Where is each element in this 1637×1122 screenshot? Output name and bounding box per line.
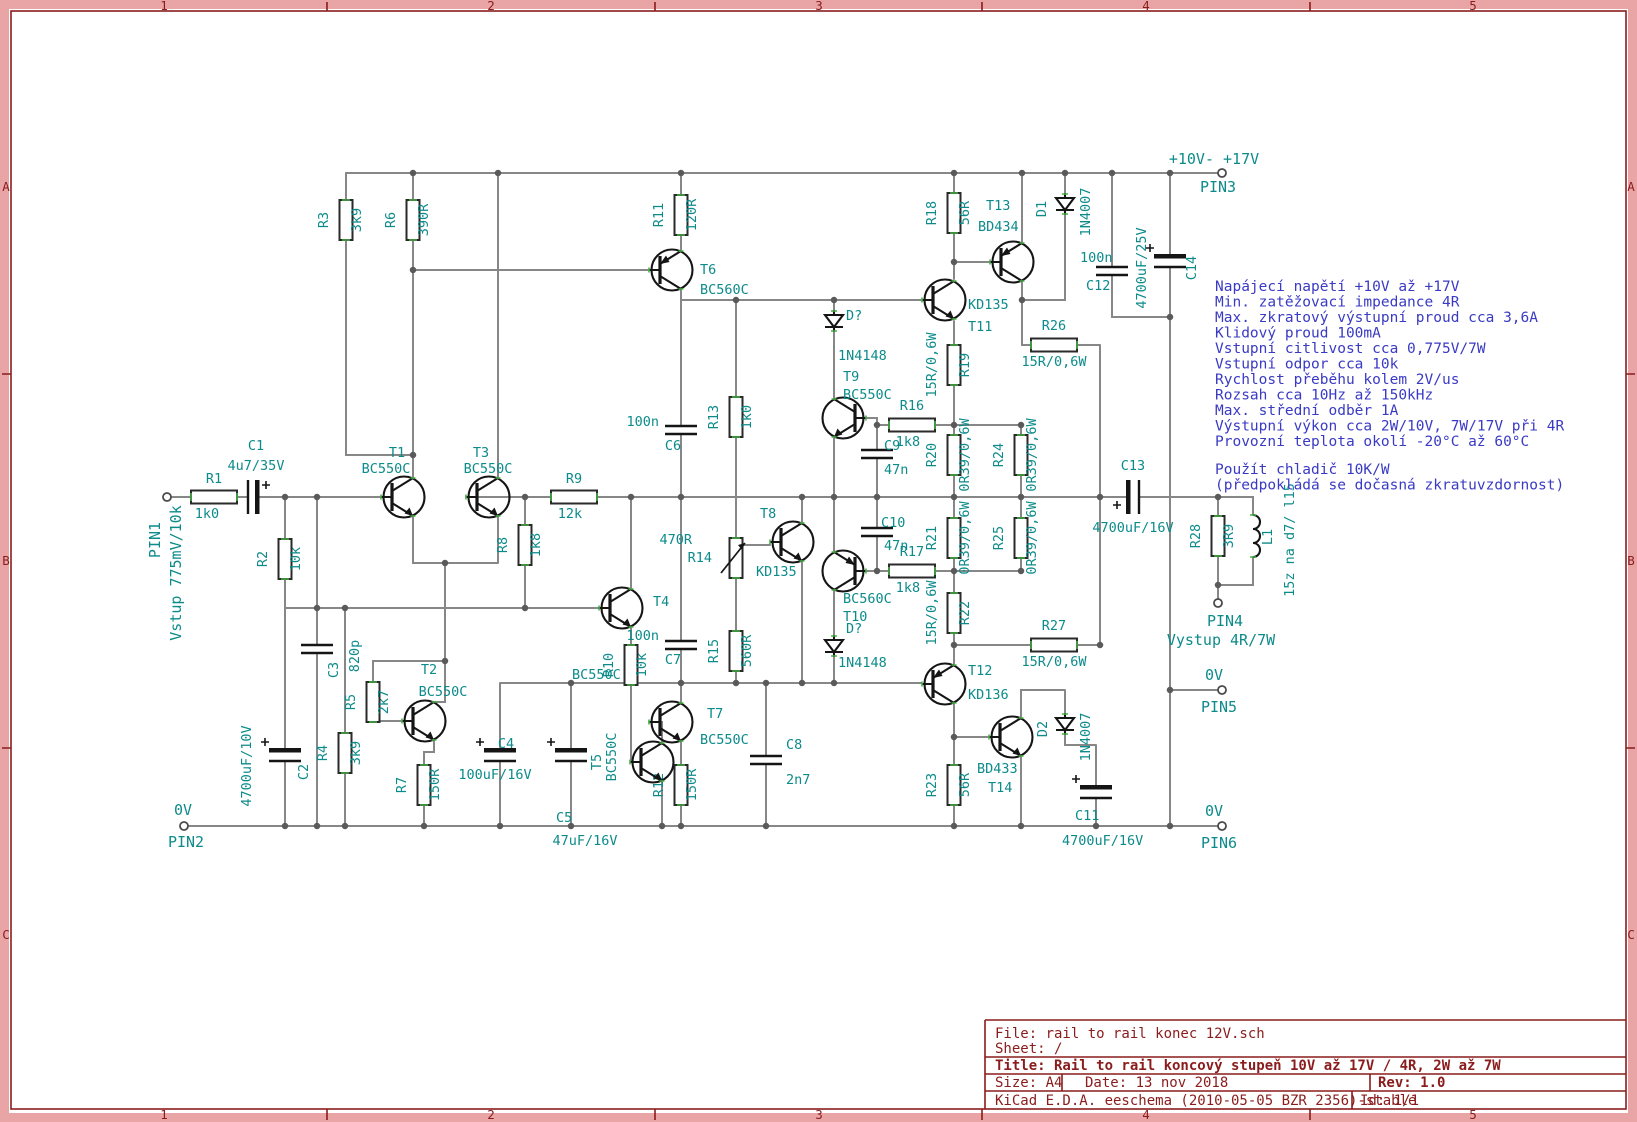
ref: R4 <box>315 745 331 761</box>
ref: R18 <box>924 201 940 225</box>
component-R24[interactable]: R24 0R39/0,6W <box>991 418 1040 492</box>
ref: R22 <box>957 601 973 625</box>
value: 4u7/35V <box>228 458 285 474</box>
net-label: 0V <box>1205 666 1223 684</box>
value: 120R <box>684 198 700 231</box>
component-C10[interactable]: C10 47n <box>861 515 908 554</box>
note-line: (předpokládá se dočasná zkratuvzdornost) <box>1215 478 1564 494</box>
value: 15R/0,6W <box>1021 354 1087 370</box>
components-layer: R3 3k9 R6 390R R11 120R R18 56R R2 10k R… <box>191 188 1298 849</box>
component-C14[interactable]: 4700uF/25V C14 <box>1134 227 1200 308</box>
row-label-b2: B <box>1627 553 1635 568</box>
ref: C5 <box>556 810 572 826</box>
value: 2n7 <box>786 772 810 788</box>
note-line: Rychlost přeběhu kolem 2V/us <box>1215 372 1459 388</box>
ref: T13 <box>986 198 1010 214</box>
ref: C4 <box>498 736 514 752</box>
value: 56R <box>957 772 973 797</box>
component-R28[interactable]: R28 3R9 <box>1188 516 1237 556</box>
col-label-4: 4 <box>1142 0 1150 13</box>
ref: C11 <box>1075 808 1099 824</box>
component-R18[interactable]: R18 56R <box>924 193 973 233</box>
note-line: Max. zkratový výstupní proud cca 3,6A <box>1215 310 1538 326</box>
col-label-3: 3 <box>815 0 823 13</box>
value: BC550C <box>572 667 621 683</box>
ref: T3 <box>473 445 489 461</box>
value: 1k8 <box>528 533 544 557</box>
component-R21[interactable]: R21 0R39/0,6W <box>924 501 973 575</box>
ref: T6 <box>700 262 716 278</box>
row-label-b: B <box>2 553 10 568</box>
component-T7[interactable]: T7 BC550C <box>649 702 749 749</box>
value: 1N4007 <box>1078 713 1094 762</box>
pin-name: PIN4 <box>1207 612 1243 630</box>
component-R2[interactable]: R2 10k <box>255 539 304 579</box>
ref: R11 <box>651 203 667 227</box>
ref: C2 <box>296 764 312 780</box>
value: 0R39/0,6W <box>957 501 973 575</box>
component-R6[interactable]: R6 390R <box>383 200 432 240</box>
component-T8[interactable]: T8 KD135 <box>756 506 814 580</box>
value: 47n <box>884 538 908 554</box>
ref: R13 <box>706 405 722 429</box>
ref: T2 <box>421 662 437 678</box>
net-label: 0V <box>174 801 192 819</box>
component-T3[interactable]: T3 BC550C <box>464 445 513 518</box>
component-R22[interactable]: 15R/0,6W R22 <box>924 580 973 646</box>
titleblock-rev: Rev: 1.0 <box>1378 1075 1445 1091</box>
ref: D1 <box>1034 201 1050 217</box>
note-line: Min. zatěžovací impedance 4R <box>1215 295 1460 311</box>
note-line: Vstupní odpor cca 10k <box>1215 357 1399 373</box>
ref: R5 <box>343 694 359 710</box>
note-line: Vstupní citlivost cca 0,775V/7W <box>1215 341 1486 357</box>
value: 0R39/0,6W <box>1024 418 1040 492</box>
value: 820p <box>347 640 363 673</box>
value: BC550C <box>604 733 620 782</box>
pin-name: PIN3 <box>1200 178 1236 196</box>
component-R1[interactable]: R1 1k0 <box>191 471 237 522</box>
component-R27[interactable]: R27 15R/0,6W <box>1021 618 1087 670</box>
value: 56R <box>957 200 973 225</box>
value: 15R/0,6W <box>924 332 940 398</box>
ref: C7 <box>665 652 681 668</box>
notes-block[interactable]: Napájecí napětí +10V až +17V Min. zatěžo… <box>1215 279 1564 494</box>
value: 470R <box>659 532 692 548</box>
value: 10k <box>288 547 304 571</box>
schematic-sheet: 1 2 3 4 5 1 2 3 4 5 A B C A B C R3 3k9 R… <box>0 0 1637 1122</box>
component-C4[interactable]: C4 100uF/16V <box>458 736 531 783</box>
value: 4700uF/16V <box>1092 520 1173 536</box>
col-label-1b: 1 <box>160 1107 168 1122</box>
component-C3[interactable]: C3 820p <box>301 640 363 678</box>
component-T9[interactable]: T9 BC550C <box>823 369 892 439</box>
ref: R26 <box>1042 318 1066 334</box>
value: 47n <box>884 462 908 478</box>
ref: T11 <box>968 319 992 335</box>
ref: T5 <box>589 754 605 770</box>
ref: C3 <box>326 662 342 678</box>
row-label-a2: A <box>1627 179 1635 194</box>
value: 100n <box>626 628 659 644</box>
value: 1k0 <box>195 506 219 522</box>
ref: C8 <box>786 737 802 753</box>
value: BD434 <box>978 219 1019 235</box>
net-label: 0V <box>1205 802 1223 820</box>
value: BC550C <box>843 387 892 403</box>
ref: R16 <box>900 398 924 414</box>
component-R5[interactable]: R5 2k7 <box>343 682 392 722</box>
component-R12[interactable]: R12 150R <box>651 765 700 805</box>
ref: T7 <box>707 706 723 722</box>
col-label-2: 2 <box>487 0 495 13</box>
row-label-c: C <box>2 927 10 942</box>
titleblock-date: Date: 13 nov 2018 <box>1085 1075 1228 1091</box>
component-T2[interactable]: T2 BC550C <box>402 662 467 742</box>
ref: C1 <box>248 438 264 454</box>
component-T13[interactable]: T13 BD434 <box>978 198 1034 283</box>
ref: R1 <box>206 471 222 487</box>
col-label-2b: 2 <box>487 1107 495 1122</box>
col-label-1: 1 <box>160 0 168 13</box>
value: 4700uF/25V <box>1134 227 1150 308</box>
value: BC550C <box>362 461 411 477</box>
col-label-3b: 3 <box>815 1107 823 1122</box>
titleblock-title: Title: Rail to rail koncový stupeň 10V a… <box>995 1058 1501 1074</box>
value: BD433 <box>977 761 1018 777</box>
ref: R23 <box>924 773 940 797</box>
ref: R8 <box>495 537 511 553</box>
titleblock-size: Size: A4 <box>995 1075 1062 1091</box>
value: 100n <box>626 414 659 430</box>
titleblock-id: Id: 1/1 <box>1360 1093 1419 1109</box>
value: 15R/0,6W <box>924 580 940 646</box>
value: KD135 <box>968 297 1009 313</box>
ref: D2 <box>1035 721 1051 737</box>
component-R23[interactable]: R23 56R <box>924 765 973 805</box>
note-line: Max. střední odběr 1A <box>1215 403 1399 419</box>
value: BC560C <box>700 282 749 298</box>
net-label: Vstup 775mV/10k <box>167 505 185 640</box>
value: 1N4148 <box>838 655 887 671</box>
ref: C12 <box>1086 278 1110 294</box>
note-line: Klidový proud 100mA <box>1215 326 1381 342</box>
pin-name: PIN1 <box>146 522 164 558</box>
component-T10[interactable]: BC560C T10 <box>823 551 892 626</box>
component-R25[interactable]: R25 0R39/0,6W <box>991 501 1040 575</box>
component-R9[interactable]: R9 12k <box>551 471 597 522</box>
component-R15[interactable]: R15 560R <box>706 631 755 671</box>
component-R8[interactable]: R8 1k8 <box>495 525 544 565</box>
pin-name: PIN6 <box>1201 834 1237 852</box>
ref: T9 <box>843 369 859 385</box>
ref: C13 <box>1121 458 1145 474</box>
ref: R27 <box>1042 618 1066 634</box>
ref: R25 <box>991 526 1007 550</box>
value: 1k0 <box>739 405 755 429</box>
row-label-a: A <box>2 179 10 194</box>
ref: R3 <box>316 212 332 228</box>
ref: R20 <box>924 443 940 467</box>
value: KD135 <box>756 564 797 580</box>
value: BC550C <box>419 684 468 700</box>
pin-name: PIN5 <box>1201 698 1237 716</box>
component-R13[interactable]: R13 1k0 <box>706 397 755 437</box>
ref: R19 <box>957 353 973 377</box>
component-T12[interactable]: T12 KD136 <box>922 663 1009 705</box>
value: 560R <box>739 634 755 667</box>
component-C2[interactable]: 4700uF/10V C2 <box>239 725 312 806</box>
value: 3k9 <box>348 741 364 765</box>
ref: D? <box>846 621 862 637</box>
col-label-5: 5 <box>1469 0 1477 13</box>
ref: T1 <box>389 445 405 461</box>
ref: C14 <box>1184 256 1200 280</box>
title-block: File: rail to rail konec 12V.sch Sheet: … <box>985 1020 1626 1109</box>
value: 100uF/16V <box>458 767 531 783</box>
col-label-4b: 4 <box>1142 1107 1150 1122</box>
component-R4[interactable]: R4 3k9 <box>315 733 364 773</box>
component-T6[interactable]: T6 BC560C <box>649 250 749 299</box>
ref: R9 <box>566 471 582 487</box>
value: 4700uF/16V <box>1062 833 1143 849</box>
value: KD136 <box>968 687 1009 703</box>
pin-PIN4[interactable]: PIN4 Vystup 4R/7W <box>1167 599 1276 649</box>
ref: L1 <box>1260 529 1276 545</box>
pin-PIN1[interactable]: PIN1 Vstup 775mV/10k <box>146 493 185 641</box>
ref: T14 <box>988 780 1012 796</box>
ref: D? <box>846 308 862 324</box>
value: 390R <box>416 203 432 236</box>
note-line: Použít chladič 10K/W <box>1215 462 1390 478</box>
component-C8[interactable]: C8 2n7 <box>750 737 810 788</box>
value: 3k9 <box>349 208 365 232</box>
component-C11[interactable]: C11 4700uF/16V <box>1062 775 1143 849</box>
note-line: Provozní teplota okolí -20°C až 60°C <box>1215 434 1529 450</box>
ref: R6 <box>383 212 399 228</box>
value: 0R39/0,6W <box>1024 501 1040 575</box>
ref: T4 <box>653 594 669 610</box>
component-T14[interactable]: BD433 T14 <box>977 717 1033 797</box>
component-R26[interactable]: R26 15R/0,6W <box>1021 318 1087 370</box>
value: BC550C <box>700 732 749 748</box>
ref: R28 <box>1188 524 1204 548</box>
net-label: Vystup 4R/7W <box>1167 631 1276 649</box>
ref: R21 <box>924 526 940 550</box>
ref: R24 <box>991 443 1007 467</box>
component-R14[interactable]: 470R R14 <box>659 532 745 578</box>
value: 10k <box>634 653 650 677</box>
component-R11[interactable]: R11 120R <box>651 195 700 235</box>
value: 12k <box>558 506 582 522</box>
ref: R14 <box>688 550 712 566</box>
component-C6[interactable]: 100n C6 <box>626 414 697 454</box>
value: BC560C <box>843 591 892 607</box>
titleblock-file: File: rail to rail konec 12V.sch <box>995 1026 1265 1042</box>
ref: C6 <box>665 438 681 454</box>
component-R3[interactable]: R3 3k9 <box>316 200 365 240</box>
value: 15z na d7/ l15 <box>1282 483 1298 597</box>
value: 1k8 <box>896 580 920 596</box>
row-label-c2: C <box>1627 927 1635 942</box>
component-T11[interactable]: KD135 T11 <box>922 280 1009 336</box>
value: 4700uF/10V <box>239 725 255 806</box>
value: 1N4148 <box>838 348 887 364</box>
col-label-5b: 5 <box>1469 1107 1477 1122</box>
component-R7[interactable]: R7 150R <box>394 765 443 805</box>
titleblock-tool: KiCad E.D.A. eeschema (2010-05-05 BZR 23… <box>995 1093 1416 1109</box>
value: 0R39/0,6W <box>957 418 973 492</box>
pin-name: PIN2 <box>168 833 204 851</box>
ref: R7 <box>394 777 410 793</box>
ref: C10 <box>881 515 905 531</box>
note-line: Výstupní výkon cca 2W/10V, 7W/17V při 4R <box>1215 419 1564 435</box>
value: 3R9 <box>1221 524 1237 548</box>
ref: R2 <box>255 551 271 567</box>
value: 100n <box>1080 250 1113 266</box>
note-line: Rozsah cca 10Hz až 150kHz <box>1215 388 1433 404</box>
ref: R15 <box>706 639 722 663</box>
value: 150R <box>427 768 443 801</box>
value: 15R/0,6W <box>1021 654 1087 670</box>
ref: T12 <box>968 663 992 679</box>
value: BC550C <box>464 461 513 477</box>
value: 2k7 <box>376 690 392 714</box>
value: 1N4007 <box>1078 188 1094 237</box>
sheet-border: 1 2 3 4 5 1 2 3 4 5 A B C A B C <box>2 0 1635 1122</box>
component-C12[interactable]: 100n C12 <box>1080 250 1128 294</box>
note-line: Napájecí napětí +10V až +17V <box>1215 279 1460 295</box>
component-R19[interactable]: 15R/0,6W R19 <box>924 332 973 398</box>
value: 47uF/16V <box>552 833 617 849</box>
component-L1[interactable]: L1 15z na d7/ l15 <box>1250 483 1298 597</box>
ref: T8 <box>760 506 776 522</box>
ref: C9 <box>884 438 900 454</box>
value: 150R <box>684 768 700 801</box>
titleblock-sheet: Sheet: / <box>995 1041 1062 1057</box>
net-label: +10V- +17V <box>1169 150 1259 168</box>
